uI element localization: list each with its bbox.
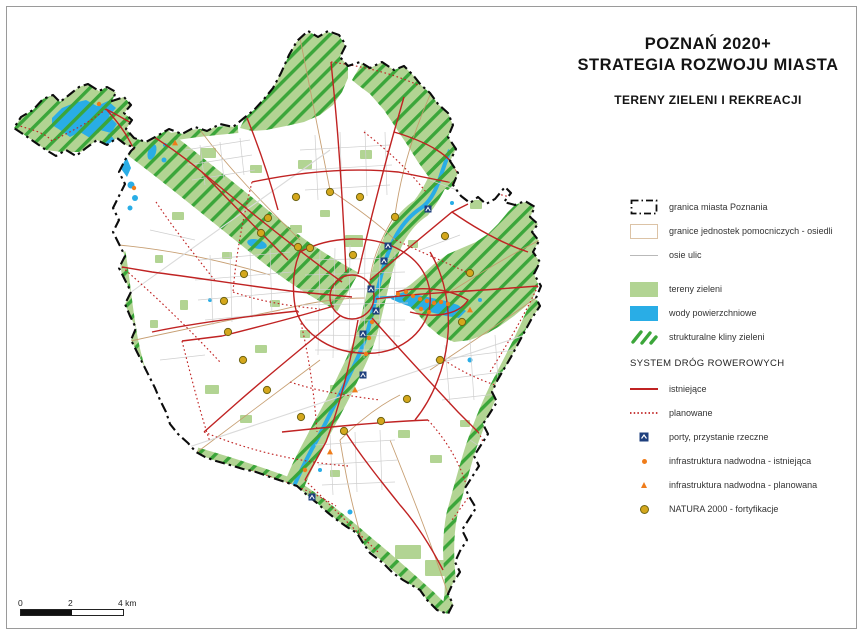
river-port-marker: [373, 308, 380, 315]
scale-label-0: 0: [18, 598, 23, 608]
surface-waters-swatch: [630, 305, 658, 321]
map-title-line2: STRATEGIA ROZWOJU MIASTA: [555, 55, 861, 76]
natura-fort-marker: [297, 413, 304, 420]
natura-fort-marker: [466, 269, 473, 276]
scale-bar-empty-segment: [72, 610, 123, 615]
legend-label: wody powierzchniowe: [669, 308, 757, 318]
map-sheet: { "title": { "line1": "POZNAŃ 2020+", "l…: [0, 0, 863, 635]
scale-label-2: 2: [68, 598, 73, 608]
legend-label: infrastruktura nadwodna - istniejąca: [669, 456, 811, 466]
natura-fort-marker: [356, 193, 363, 200]
waterside-existing-marker: [411, 294, 415, 298]
river-port-marker: [368, 286, 375, 293]
waterside-existing-marker: [419, 307, 423, 311]
bike-planned-swatch: [630, 405, 658, 421]
scale-label-4km: 4 km: [118, 598, 136, 608]
legend-item-city-boundary: granica miasta Poznania: [630, 195, 856, 219]
waterside-existing-marker: [364, 352, 368, 356]
natura-fort-marker: [239, 356, 246, 363]
natura-fort-marker: [292, 193, 299, 200]
river-port-marker: [385, 243, 392, 250]
waterside-existing-marker: [432, 301, 436, 305]
legend-item-green-areas: tereny zieleni: [630, 277, 856, 301]
legend-item-district-boundary: granice jednostek pomocniczych - osiedli: [630, 219, 856, 243]
natura-fort-marker: [220, 297, 227, 304]
river-port-marker: [360, 372, 367, 379]
natura-fort-marker: [326, 188, 333, 195]
legend-item-waterside-existing: infrastruktura nadwodna - istniejąca: [630, 449, 856, 473]
scale-bar-filled-segment: [21, 610, 72, 615]
waterside-existing-marker: [446, 302, 450, 306]
waterside-existing-marker: [370, 320, 374, 324]
waterside-existing-marker: [396, 292, 400, 296]
natura-fort-marker: [294, 243, 301, 250]
legend-item-waterside-planned: infrastruktura nadwodna - planowana: [630, 473, 856, 497]
legend-item-river-ports: porty, przystanie rzeczne: [630, 425, 856, 449]
legend-label: granica miasta Poznania: [669, 202, 768, 212]
city-boundary-swatch: [630, 199, 658, 215]
legend-label: planowane: [669, 408, 713, 418]
river-port-marker: [360, 331, 367, 338]
natura-fort-marker: [306, 244, 313, 251]
legend-section-header: SYSTEM DRÓG ROWEROWYCH: [630, 351, 856, 375]
river-ports-swatch: [630, 429, 658, 445]
legend-label: NATURA 2000 - fortyfikacje: [669, 504, 778, 514]
waterside-existing-marker: [404, 290, 408, 294]
natura-fort-marker: [458, 318, 465, 325]
natura-fort-marker: [263, 386, 270, 393]
river-port-marker: [381, 258, 388, 265]
natura-fort-marker: [441, 232, 448, 239]
legend-label: granice jednostek pomocniczych - osiedli: [669, 226, 833, 236]
waterside-existing-marker: [97, 102, 101, 106]
scale-bar-rule: [20, 609, 124, 616]
legend-label: istniejące: [669, 384, 707, 394]
natura-fort-marker: [340, 427, 347, 434]
district-boundary-swatch: [630, 223, 658, 239]
natura-fort-marker: [436, 356, 443, 363]
legend-item-surface-waters: wody powierzchniowe: [630, 301, 856, 325]
legend-item-natura-forts: NATURA 2000 - fortyfikacje: [630, 497, 856, 521]
map-title-line1: POZNAŃ 2020+: [555, 34, 861, 55]
river-port-marker: [425, 206, 432, 213]
waterside-existing-marker: [303, 468, 307, 472]
natura-forts-swatch: [630, 501, 658, 517]
bike-existing-swatch: [630, 381, 658, 397]
waterside-existing-marker: [427, 310, 431, 314]
natura-fort-marker: [240, 270, 247, 277]
street-axes-swatch: [630, 247, 658, 263]
legend-item-street-axes: osie ulic: [630, 243, 856, 267]
river-port-marker: [309, 494, 316, 501]
legend-item-bike-planned: planowane: [630, 401, 856, 425]
legend-label: tereny zieleni: [669, 284, 722, 294]
title-block: POZNAŃ 2020+ STRATEGIA ROZWOJU MIASTA TE…: [555, 34, 861, 107]
natura-fort-marker: [257, 229, 264, 236]
waterside-planned-marker: [327, 449, 333, 455]
green-areas-swatch: [630, 281, 658, 297]
legend-item-bike-existing: istniejące: [630, 377, 856, 401]
legend-label: strukturalne kliny zieleni: [669, 332, 765, 342]
waterside-existing-swatch: [630, 453, 658, 469]
legend-label: porty, przystanie rzeczne: [669, 432, 768, 442]
legend: granica miasta Poznania granice jednoste…: [630, 195, 856, 521]
legend-label: infrastruktura nadwodna - planowana: [669, 480, 817, 490]
waterside-planned-swatch: [630, 477, 658, 493]
natura-fort-marker: [349, 251, 356, 258]
natura-fort-marker: [264, 214, 271, 221]
legend-item-green-wedges: strukturalne kliny zieleni: [630, 325, 856, 349]
waterside-existing-marker: [425, 299, 429, 303]
scale-bar-labels: 0 2 4 km: [20, 598, 160, 608]
green-wedges-swatch: [630, 329, 658, 345]
map-subtitle: TERENY ZIELENI I REKREACJI: [555, 93, 861, 107]
waterside-existing-marker: [132, 186, 136, 190]
waterside-existing-marker: [418, 297, 422, 301]
legend-label: osie ulic: [669, 250, 702, 260]
natura-fort-marker: [403, 395, 410, 402]
natura-fort-marker: [391, 213, 398, 220]
waterside-existing-marker: [367, 336, 371, 340]
natura-fort-marker: [377, 417, 384, 424]
waterside-existing-marker: [439, 300, 443, 304]
scale-bar: 0 2 4 km: [20, 598, 160, 616]
natura-fort-marker: [224, 328, 231, 335]
